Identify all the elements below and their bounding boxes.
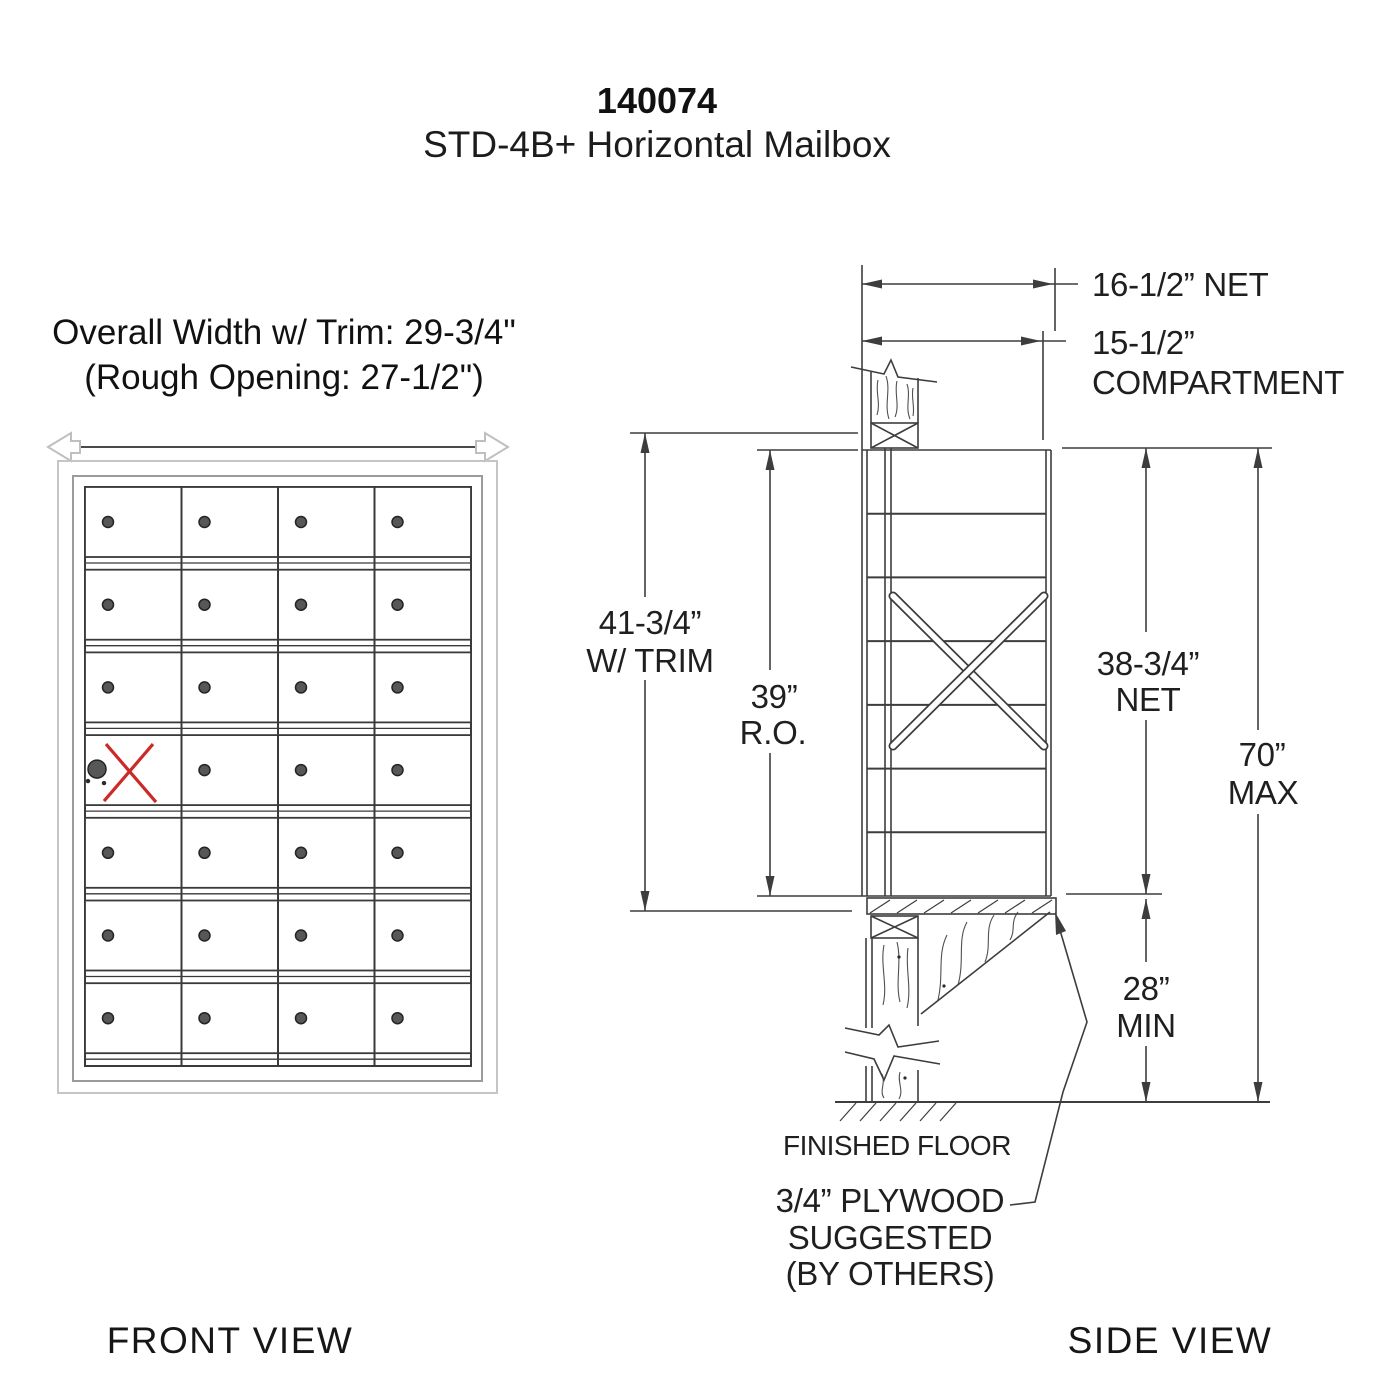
mailbox-door bbox=[85, 570, 182, 640]
break-line-upper bbox=[845, 1025, 939, 1047]
mailbox-door bbox=[278, 983, 375, 1053]
label-max-height-2: MAX bbox=[1228, 774, 1299, 811]
mailbox-door bbox=[278, 735, 375, 805]
label-compartment-depth-2: COMPARTMENT bbox=[1092, 364, 1344, 401]
spec-sheet: 140074 STD-4B+ Horizontal Mailbox Overal… bbox=[0, 0, 1400, 1400]
mailbox-door bbox=[278, 487, 375, 557]
mailbox-door bbox=[85, 818, 182, 888]
label-height-with-trim: 41-3/4” bbox=[599, 604, 701, 641]
mailbox-door bbox=[85, 983, 182, 1053]
lock-dot bbox=[199, 765, 210, 776]
mailbox-door bbox=[182, 487, 279, 557]
label-height-with-trim-2: W/ TRIM bbox=[586, 642, 713, 679]
break-line-lower bbox=[845, 1052, 940, 1080]
label-plywood-note: 3/4” PLYWOOD bbox=[776, 1182, 1005, 1219]
mailbox-door bbox=[375, 570, 472, 640]
technical-drawing: 16-1/2” NET 15-1/2” COMPARTMENT 41-3/4” … bbox=[0, 0, 1400, 1400]
label-plywood-note-3: (BY OTHERS) bbox=[786, 1255, 995, 1292]
lock-dot bbox=[199, 930, 210, 941]
lock-dot bbox=[103, 599, 114, 610]
wall-stud-bottom bbox=[845, 912, 1050, 1101]
lock-dot bbox=[392, 682, 403, 693]
lock-dot bbox=[199, 517, 210, 528]
lock-dot bbox=[296, 765, 307, 776]
master-lock-dot bbox=[88, 760, 106, 778]
mailbox-door bbox=[182, 735, 279, 805]
label-min-clearance-2: MIN bbox=[1116, 1007, 1176, 1044]
master-pin-dot bbox=[86, 779, 90, 783]
lock-dot bbox=[199, 1013, 210, 1024]
wall-stud-top bbox=[851, 360, 937, 448]
lock-dot bbox=[296, 1013, 307, 1024]
finished-floor-line bbox=[835, 1102, 1270, 1121]
lock-dot bbox=[392, 847, 403, 858]
lock-dot bbox=[392, 930, 403, 941]
label-compartment-depth: 15-1/2” bbox=[1092, 324, 1194, 361]
mailbox-door bbox=[278, 901, 375, 971]
lock-dot bbox=[199, 682, 210, 693]
lock-dot bbox=[392, 1013, 403, 1024]
lock-dot bbox=[296, 930, 307, 941]
lock-dot bbox=[296, 599, 307, 610]
cross-brace-icon bbox=[893, 596, 1044, 746]
mailbox-door bbox=[278, 818, 375, 888]
side-view-drawing bbox=[630, 265, 1272, 1205]
lock-dot bbox=[392, 599, 403, 610]
mailbox-door bbox=[278, 652, 375, 722]
lock-dot bbox=[392, 765, 403, 776]
dimension-net-depth bbox=[862, 268, 1078, 331]
mailbox-door bbox=[85, 901, 182, 971]
mailbox-door bbox=[375, 818, 472, 888]
lock-dot bbox=[296, 847, 307, 858]
mailbox-door bbox=[182, 983, 279, 1053]
lock-dot bbox=[199, 599, 210, 610]
mailbox-door bbox=[182, 652, 279, 722]
lock-dot bbox=[103, 682, 114, 693]
lock-dot bbox=[296, 517, 307, 528]
mailbox-door bbox=[375, 487, 472, 557]
label-finished-floor: FINISHED FLOOR bbox=[783, 1130, 1011, 1161]
lock-dot bbox=[296, 682, 307, 693]
width-double-arrow-icon bbox=[48, 433, 508, 461]
label-rough-opening-2: R.O. bbox=[740, 714, 807, 751]
label-net-height-2: NET bbox=[1115, 681, 1180, 718]
plywood-shelf bbox=[867, 898, 1056, 914]
mailbox-door bbox=[182, 901, 279, 971]
label-max-height: 70” bbox=[1239, 736, 1286, 773]
mailbox-door bbox=[375, 652, 472, 722]
mailbox-door bbox=[375, 735, 472, 805]
plywood-leader-line bbox=[1010, 912, 1087, 1205]
mailbox-door bbox=[278, 570, 375, 640]
support-brace bbox=[921, 912, 1050, 1014]
dimension-labels: 16-1/2” NET 15-1/2” COMPARTMENT 41-3/4” … bbox=[586, 266, 1344, 1292]
label-min-clearance: 28” bbox=[1123, 970, 1170, 1007]
lock-dot bbox=[103, 1013, 114, 1024]
compartment-shelves bbox=[867, 514, 1046, 833]
lock-dot bbox=[199, 847, 210, 858]
mailbox-door bbox=[85, 487, 182, 557]
label-rough-opening: 39” bbox=[751, 678, 798, 715]
front-view-drawing bbox=[48, 433, 508, 1093]
lock-dot bbox=[103, 517, 114, 528]
mailbox-door bbox=[375, 983, 472, 1053]
lock-dot bbox=[392, 517, 403, 528]
mailbox-door bbox=[182, 818, 279, 888]
lock-dot bbox=[103, 847, 114, 858]
dimension-rough-opening bbox=[757, 450, 862, 896]
cabinet-section bbox=[862, 448, 1051, 896]
mailbox-door bbox=[182, 570, 279, 640]
lock-dot bbox=[103, 930, 114, 941]
mailbox-door bbox=[85, 652, 182, 722]
label-net-depth: 16-1/2” NET bbox=[1092, 266, 1269, 303]
label-net-height: 38-3/4” bbox=[1097, 645, 1199, 682]
master-pin-dot bbox=[102, 781, 106, 785]
label-plywood-note-2: SUGGESTED bbox=[788, 1219, 993, 1256]
mailbox-door bbox=[375, 901, 472, 971]
